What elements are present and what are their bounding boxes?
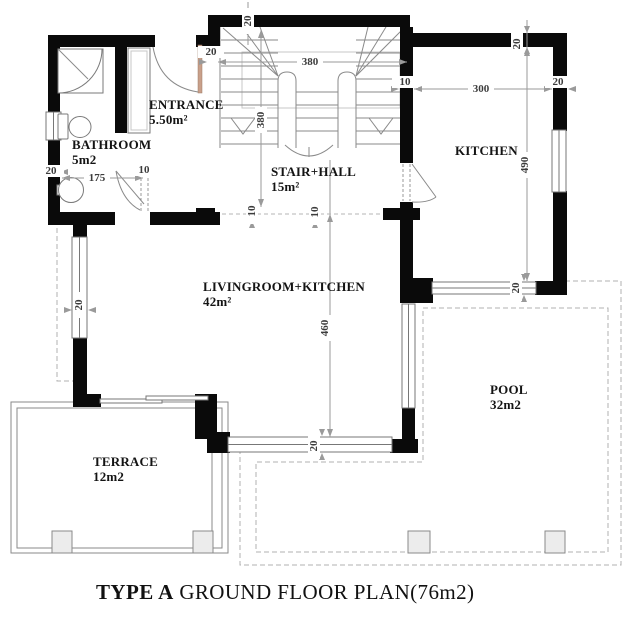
- dim-wall-kitchen-right: 20: [545, 76, 571, 88]
- livingroom-area: 42m²: [203, 294, 365, 309]
- dim-wall-top-kitchen: 20: [511, 31, 523, 57]
- toilet-icon: [58, 114, 91, 139]
- dim-wall-bath-left: 20: [38, 165, 64, 177]
- room-label-livingroom: LIVINGROOM+KITCHEN 42m²: [203, 279, 365, 309]
- terrace-area: 12m2: [93, 469, 158, 484]
- kitchen-name: KITCHEN: [455, 143, 518, 158]
- dim-wall-stair-left: 20: [198, 46, 224, 58]
- room-label-kitchen: KITCHEN: [455, 143, 518, 158]
- stair-hall-area: 15m²: [271, 179, 356, 194]
- dim-bathroom-width: 175: [84, 172, 110, 184]
- columns: [52, 531, 565, 553]
- dim-stair-width: 380: [297, 56, 323, 68]
- dim-hall-opening-b: 10: [309, 199, 321, 225]
- bathroom-name: BATHROOM: [72, 137, 151, 152]
- dim-wall-top-stair: 20: [242, 8, 254, 34]
- room-label-pool: POOL 32m2: [490, 382, 528, 412]
- plan-title: TYPE A GROUND FLOOR PLAN(76m2): [96, 580, 474, 605]
- dim-kitchen-width: 300: [468, 83, 494, 95]
- room-label-stair-hall: STAIR+HALL 15m²: [271, 164, 356, 194]
- shower-icon: [58, 49, 103, 93]
- room-label-bathroom: BATHROOM 5m2: [72, 137, 151, 167]
- dim-window-kitchen-bottom: 20: [510, 275, 522, 301]
- dim-stair-depth: 380: [255, 107, 267, 133]
- dim-living-depth: 460: [319, 315, 331, 341]
- plan-name: GROUND FLOOR PLAN(76m2): [179, 580, 474, 604]
- sink-icon: [57, 178, 84, 203]
- pool-name: POOL: [490, 382, 528, 397]
- plan-type: TYPE A: [96, 580, 174, 604]
- stair-hall-name: STAIR+HALL: [271, 164, 356, 179]
- kitchen-door: [403, 164, 436, 202]
- entrance-name: ENTRANCE: [149, 97, 224, 112]
- dim-window-living-left: 20: [73, 292, 85, 318]
- floorplan-drawing: [0, 0, 640, 623]
- entrance-door: [153, 45, 202, 93]
- livingroom-name: LIVINGROOM+KITCHEN: [203, 279, 365, 294]
- room-label-terrace: TERRACE 12m2: [93, 454, 158, 484]
- pool-area: 32m2: [490, 397, 528, 412]
- bathroom-door: [116, 171, 148, 211]
- wardrobe-icon: [128, 48, 150, 133]
- dim-window-living-bottom: 20: [308, 433, 320, 459]
- terrace-name: TERRACE: [93, 454, 158, 469]
- dim-wall-hall-kitchen: 10: [392, 76, 418, 88]
- entrance-area: 5.50m²: [149, 112, 224, 127]
- floor-plan: BATHROOM 5m2 ENTRANCE 5.50m² STAIR+HALL …: [0, 0, 640, 623]
- staircase: [220, 27, 404, 157]
- dim-kitchen-depth: 490: [519, 152, 531, 178]
- dim-hall-opening-a: 10: [246, 198, 258, 224]
- room-label-entrance: ENTRANCE 5.50m²: [149, 97, 224, 127]
- dim-door-bath: 10: [131, 164, 157, 176]
